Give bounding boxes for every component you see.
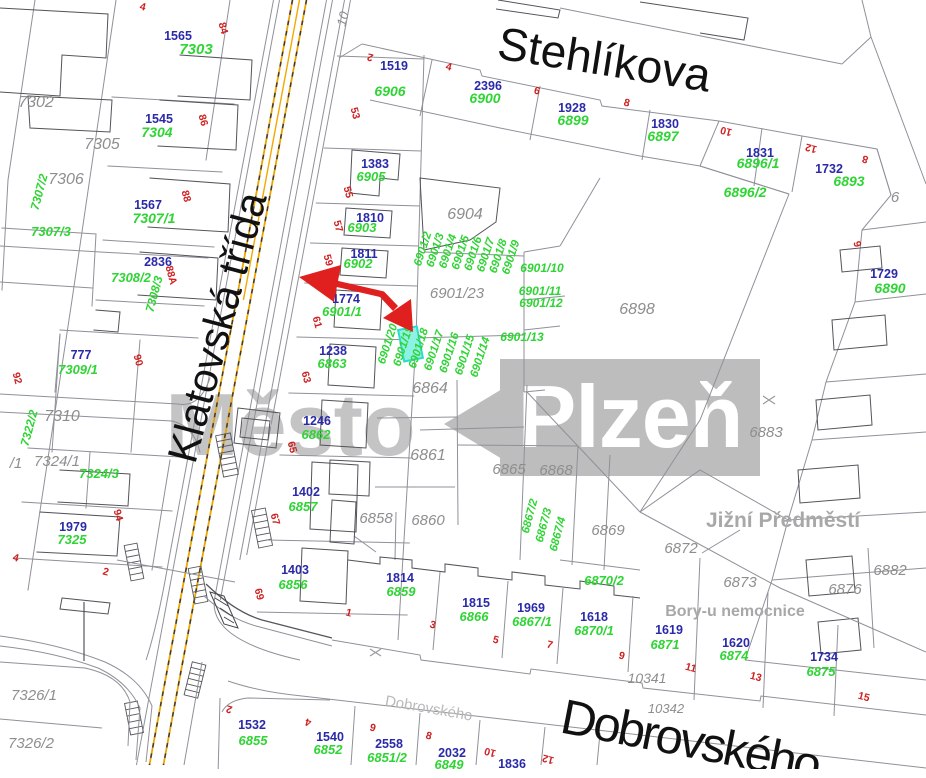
svg-text:6869: 6869 (591, 522, 625, 539)
svg-text:6861: 6861 (410, 447, 446, 464)
svg-text:6870/2: 6870/2 (584, 573, 625, 588)
svg-text:7310: 7310 (44, 408, 80, 425)
svg-text:6876: 6876 (828, 581, 862, 598)
svg-text:1734: 1734 (810, 650, 838, 664)
svg-text:6865: 6865 (492, 461, 526, 478)
svg-text:1619: 1619 (655, 623, 683, 637)
svg-text:6902: 6902 (344, 256, 374, 271)
svg-text:6896/1: 6896/1 (737, 155, 780, 171)
svg-text:1969: 1969 (517, 601, 545, 615)
svg-text:6882: 6882 (873, 562, 907, 579)
svg-text:2558: 2558 (375, 737, 403, 751)
svg-text:1246: 1246 (303, 414, 331, 428)
svg-text:7309/1: 7309/1 (58, 362, 98, 377)
svg-text:6856: 6856 (279, 577, 309, 592)
svg-text:7324/3: 7324/3 (79, 466, 120, 481)
svg-text:7326/2: 7326/2 (8, 735, 55, 752)
svg-text:6901/13: 6901/13 (500, 330, 544, 344)
svg-text:1618: 1618 (580, 610, 608, 624)
svg-text:6901/1: 6901/1 (322, 304, 362, 319)
svg-text:1729: 1729 (870, 267, 898, 281)
svg-text:7306: 7306 (48, 171, 84, 188)
svg-text:1402: 1402 (292, 485, 320, 499)
svg-text:6871: 6871 (651, 637, 680, 652)
svg-text:6874: 6874 (720, 648, 750, 663)
svg-text:6893: 6893 (833, 173, 864, 189)
svg-text:6900: 6900 (469, 90, 500, 106)
svg-text:6866: 6866 (460, 609, 490, 624)
svg-text:1403: 1403 (281, 563, 309, 577)
svg-text:Plzeň: Plzeň (518, 367, 743, 466)
svg-text:6864: 6864 (412, 380, 448, 397)
svg-text:6897: 6897 (647, 128, 679, 144)
svg-text:6873: 6873 (723, 574, 757, 591)
svg-text:/1: /1 (9, 455, 23, 472)
svg-text:6906: 6906 (374, 83, 405, 99)
svg-text:6859: 6859 (387, 584, 417, 599)
svg-text:6852: 6852 (314, 742, 344, 757)
svg-text:6858: 6858 (359, 510, 393, 527)
svg-text:6904: 6904 (447, 206, 483, 223)
svg-text:6857: 6857 (289, 499, 319, 514)
svg-text:Jižní Předměstí: Jižní Předměstí (706, 509, 861, 532)
svg-text:7302: 7302 (18, 94, 54, 111)
svg-text:6899: 6899 (557, 112, 588, 128)
svg-text:7307/1: 7307/1 (133, 210, 176, 226)
svg-text:6867/1: 6867/1 (512, 614, 552, 629)
svg-text:7304: 7304 (141, 124, 172, 140)
svg-text:1532: 1532 (238, 718, 266, 732)
svg-text:7324/1: 7324/1 (34, 453, 80, 470)
svg-text:6903: 6903 (348, 220, 378, 235)
svg-text:6901/23: 6901/23 (430, 285, 485, 302)
svg-text:1814: 1814 (386, 571, 414, 585)
svg-text:6901/12: 6901/12 (519, 296, 563, 310)
svg-text:7303: 7303 (179, 41, 213, 58)
svg-text:6905: 6905 (357, 169, 387, 184)
svg-text:1836: 1836 (498, 757, 526, 771)
svg-text:7308/2: 7308/2 (111, 270, 152, 285)
svg-text:777: 777 (71, 348, 92, 362)
svg-text:6870/1: 6870/1 (574, 623, 614, 638)
svg-text:6: 6 (891, 189, 900, 206)
svg-text:7325: 7325 (58, 532, 88, 547)
svg-text:7305: 7305 (84, 136, 120, 153)
svg-text:1519: 1519 (380, 59, 408, 73)
svg-text:6863: 6863 (318, 356, 348, 371)
svg-text:7307/3: 7307/3 (31, 224, 72, 239)
svg-text:1815: 1815 (462, 596, 490, 610)
svg-text:6901/10: 6901/10 (520, 261, 564, 275)
svg-text:6851/2: 6851/2 (367, 750, 408, 765)
svg-text:6868: 6868 (539, 462, 573, 479)
svg-text:7326/1: 7326/1 (11, 687, 57, 704)
svg-text:6896/2: 6896/2 (724, 184, 767, 200)
svg-text:Bory-u nemocnice: Bory-u nemocnice (665, 603, 805, 620)
svg-text:6860: 6860 (411, 512, 445, 529)
svg-text:10341: 10341 (628, 670, 667, 686)
svg-text:6862: 6862 (302, 427, 332, 442)
svg-text:6855: 6855 (239, 733, 269, 748)
svg-text:6890: 6890 (874, 280, 905, 296)
svg-text:6898: 6898 (619, 301, 655, 318)
svg-text:6875: 6875 (807, 664, 837, 679)
svg-text:6883: 6883 (749, 424, 783, 441)
svg-text:6872: 6872 (664, 540, 698, 557)
